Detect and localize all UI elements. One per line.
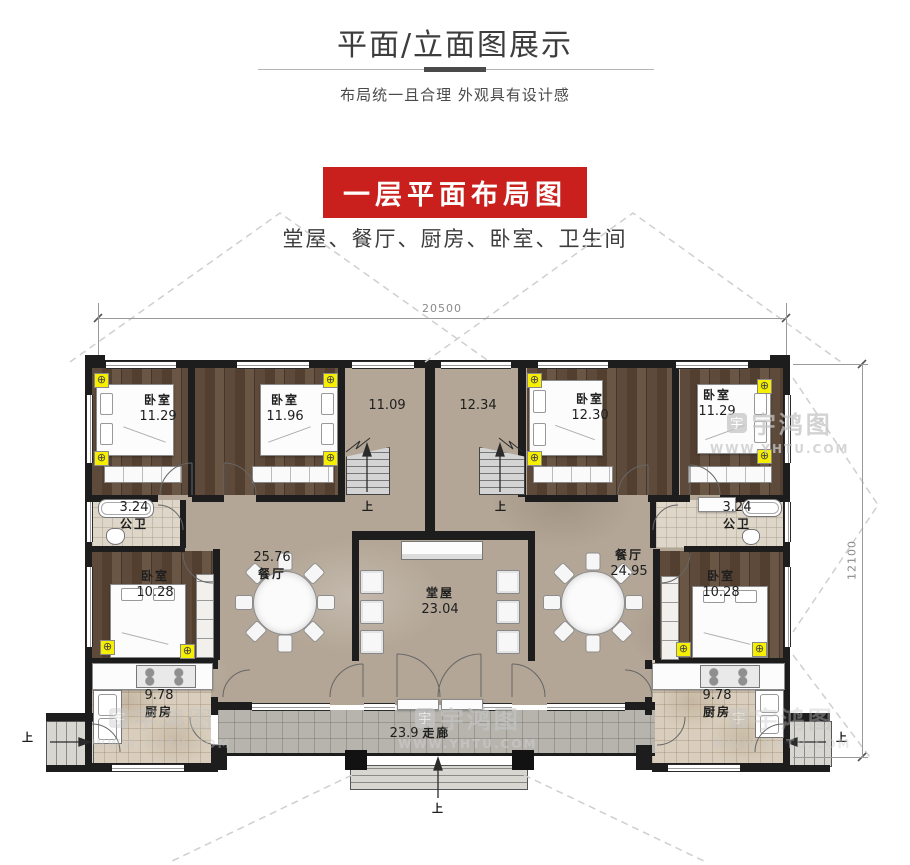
- room-label-main-hall: 堂屋23.04: [421, 586, 458, 618]
- room-label-kitchen-left: 9.78厨房: [145, 688, 174, 720]
- dim-width-label: 20500: [422, 302, 462, 315]
- floor-plan-page: 平面/立面图展示 布局统一且合理 外观具有设计感 一层平面布局图 堂屋、餐厅、厨…: [0, 0, 910, 865]
- room-label-dining-left: 25.76餐厅: [253, 550, 290, 582]
- dim-ext: [98, 303, 99, 355]
- room-label-bedroom-c: 卧室12.30: [571, 392, 608, 424]
- room-label-stair-right: 12.34: [459, 398, 496, 415]
- stair-up-label: 上: [362, 498, 373, 514]
- room-label-kitchen-right: 9.78厨房: [703, 688, 732, 720]
- room-label-bedroom-l2: 卧室10.28: [136, 569, 173, 601]
- room-label-corridor: 23.9 走廊: [390, 726, 451, 743]
- room-label-bath-left: 3.24公卫: [120, 500, 149, 532]
- dim-line-right: [862, 364, 863, 758]
- plan-linework: [0, 0, 910, 865]
- dim-line-top: [98, 318, 786, 319]
- dim-height-label: 12100: [846, 540, 859, 580]
- steps-up-label: 上: [836, 729, 847, 745]
- dim-ext: [793, 757, 868, 758]
- steps-up-label: 上: [432, 800, 443, 816]
- room-label-bedroom-d: 卧室11.29: [698, 388, 735, 420]
- room-label-bedroom-a: 卧室11.29: [139, 393, 176, 425]
- room-label-bedroom-r2: 卧室10.28: [702, 569, 739, 601]
- room-label-bedroom-b: 卧室11.96: [266, 393, 303, 425]
- room-label-bath-right: 3.24公卫: [723, 500, 752, 532]
- room-label-dining-right: 餐厅24.95: [610, 548, 647, 580]
- dim-ext: [786, 303, 787, 355]
- steps-up-label: 上: [22, 729, 33, 745]
- room-label-stair-left: 11.09: [368, 398, 405, 415]
- stair-up-label: 上: [495, 498, 506, 514]
- dim-ext: [793, 364, 868, 365]
